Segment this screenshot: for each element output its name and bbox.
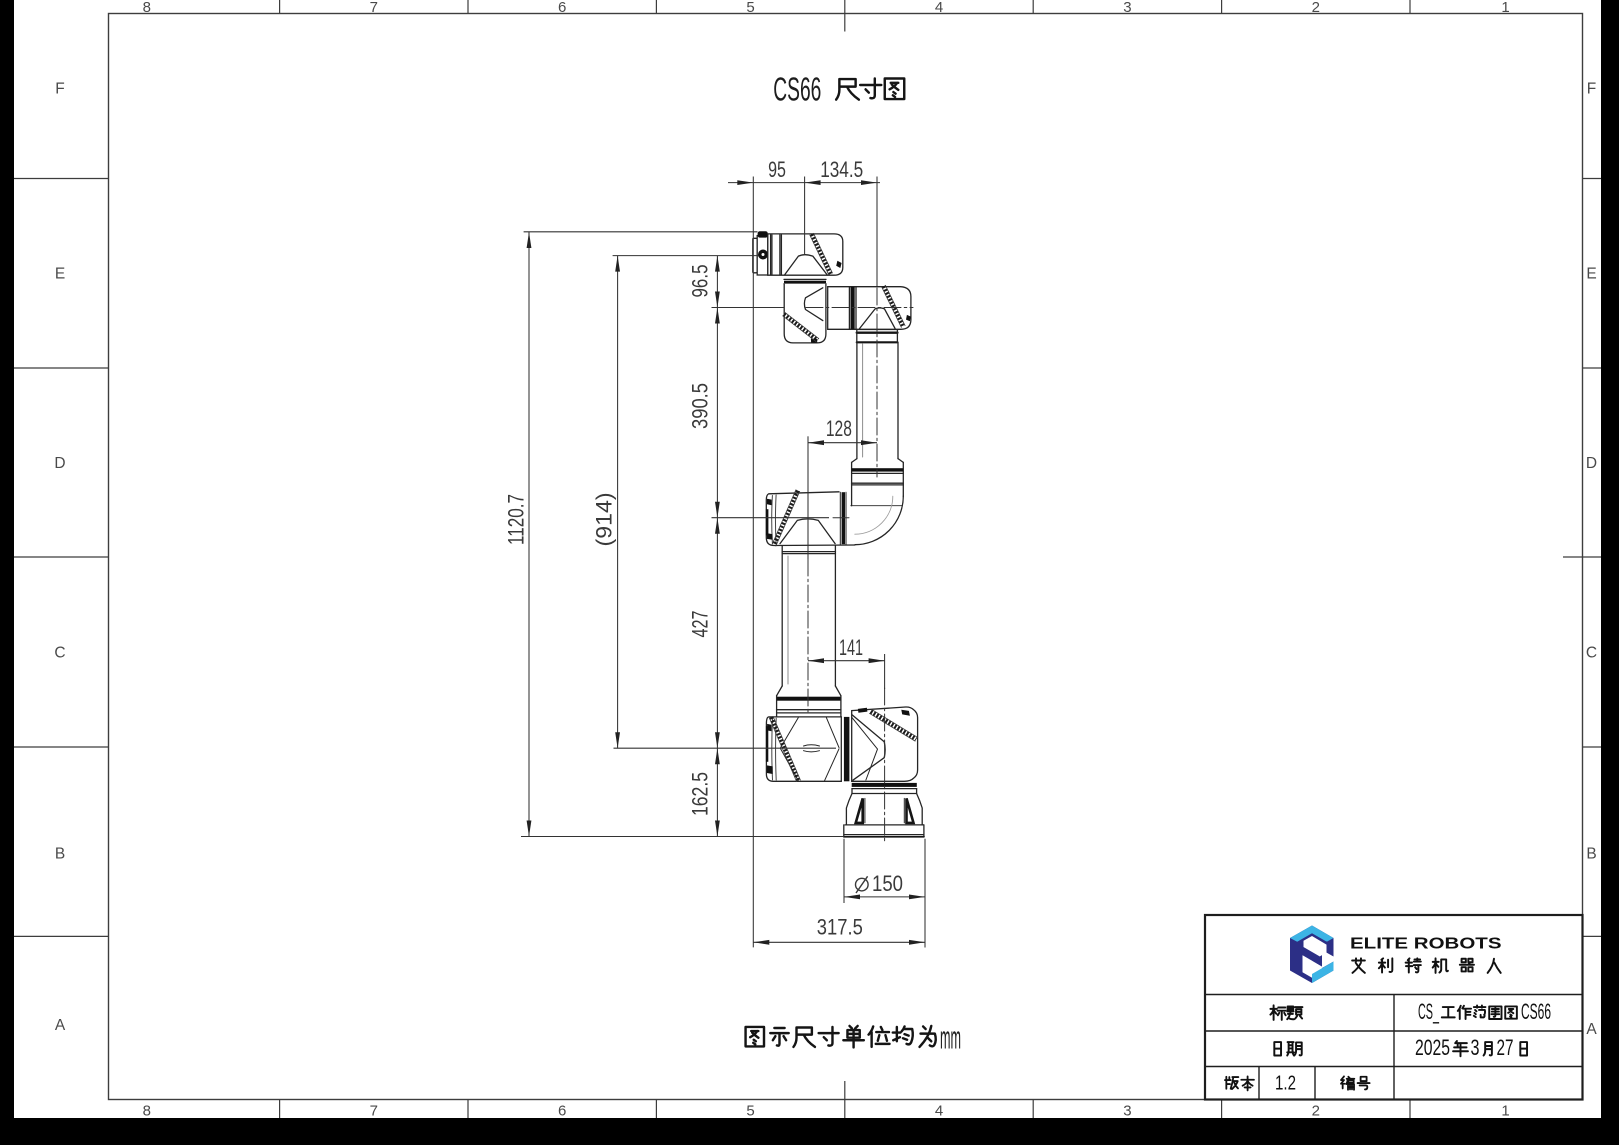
- svg-text:2025: 2025: [1415, 1035, 1450, 1060]
- svg-text:CS66: CS66: [1521, 999, 1551, 1024]
- svg-text:27: 27: [1497, 1035, 1514, 1060]
- svg-text:CS_: CS_: [1418, 999, 1439, 1024]
- svg-text:B: B: [55, 846, 65, 863]
- svg-text:7: 7: [370, 0, 378, 16]
- svg-text:150: 150: [872, 871, 903, 896]
- svg-text:(914): (914): [592, 493, 617, 547]
- svg-text:F: F: [1587, 81, 1596, 98]
- svg-text:CS66: CS66: [773, 71, 821, 108]
- svg-text:D: D: [54, 455, 65, 472]
- svg-text:F: F: [55, 81, 64, 98]
- svg-text:D: D: [1586, 455, 1597, 472]
- svg-text:6: 6: [558, 0, 566, 16]
- svg-text:A: A: [1586, 1021, 1597, 1038]
- svg-text:1.2: 1.2: [1275, 1072, 1296, 1094]
- svg-text:162.5: 162.5: [688, 772, 713, 816]
- svg-text:390.5: 390.5: [688, 383, 713, 429]
- svg-text:141: 141: [839, 635, 863, 660]
- svg-text:3: 3: [1123, 0, 1131, 16]
- svg-text:5: 5: [746, 0, 754, 16]
- svg-text:E: E: [55, 266, 65, 283]
- svg-text:134.5: 134.5: [820, 157, 863, 182]
- svg-text:96.5: 96.5: [688, 265, 713, 298]
- svg-text:B: B: [1586, 846, 1596, 863]
- svg-text:2: 2: [1312, 1103, 1320, 1120]
- svg-text:95: 95: [768, 157, 786, 182]
- svg-text:317.5: 317.5: [817, 915, 863, 940]
- svg-text:128: 128: [826, 416, 852, 441]
- svg-text:1: 1: [1501, 0, 1509, 16]
- svg-text:mm: mm: [940, 1020, 961, 1056]
- svg-text:1120.7: 1120.7: [504, 494, 529, 545]
- svg-text:A: A: [55, 1017, 66, 1034]
- svg-text:5: 5: [746, 1103, 754, 1120]
- svg-text:2: 2: [1312, 0, 1320, 16]
- svg-text:8: 8: [143, 0, 151, 16]
- svg-text:4: 4: [935, 0, 943, 16]
- svg-text:3: 3: [1471, 1035, 1480, 1060]
- svg-text:ELITE ROBOTS: ELITE ROBOTS: [1350, 935, 1502, 952]
- svg-text:4: 4: [935, 1103, 943, 1120]
- svg-text:3: 3: [1123, 1103, 1131, 1120]
- svg-text:C: C: [54, 645, 65, 662]
- svg-text:7: 7: [370, 1103, 378, 1120]
- svg-text:6: 6: [558, 1103, 566, 1120]
- svg-text:8: 8: [143, 1103, 151, 1120]
- svg-text:1: 1: [1501, 1103, 1509, 1120]
- svg-text:E: E: [1586, 266, 1596, 283]
- svg-text:427: 427: [688, 611, 713, 638]
- svg-text:C: C: [1586, 645, 1597, 662]
